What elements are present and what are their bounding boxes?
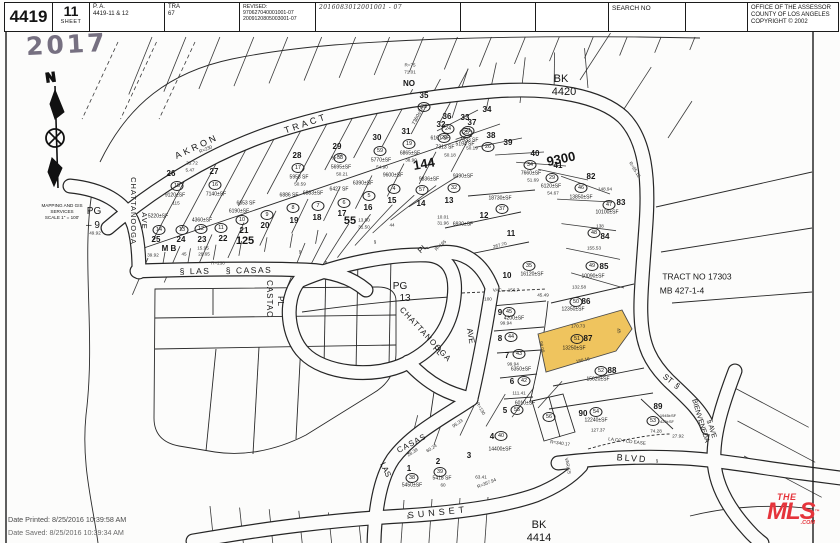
tra-cell: TRA 67 bbox=[165, 3, 240, 31]
date-saved: Date Saved: 8/25/2016 10:39:34 AM bbox=[8, 528, 124, 537]
assessor-office-cell: OFFICE OF THE ASSESSOR COUNTY OF LOS ANG… bbox=[748, 3, 838, 31]
search-no-cell: SEARCH NO bbox=[609, 3, 686, 31]
sheet-number: 11 bbox=[56, 4, 86, 19]
mls-logo-mls: MLS™ bbox=[767, 502, 817, 522]
map-canvas: N AKRONTRACT§ LAS § CASASCASTACPLCHATTAN… bbox=[0, 0, 840, 543]
year-stamp: 2017 bbox=[25, 28, 108, 61]
pa-label: P. A. bbox=[93, 4, 161, 11]
empty-cell bbox=[686, 3, 748, 31]
date-printed: Date Printed: 8/25/2016 10:39:58 AM bbox=[8, 515, 126, 524]
map-book-number: 4419 bbox=[5, 3, 53, 31]
tra-label: TRA bbox=[168, 4, 236, 11]
revised-entry-2: 2009120805003001-07 bbox=[243, 16, 312, 22]
trademark-symbol: ™ bbox=[815, 509, 819, 515]
svg-text:N: N bbox=[44, 70, 57, 86]
sheet-label: SHEET bbox=[56, 19, 86, 25]
office-line-2: COUNTY OF LOS ANGELES bbox=[751, 12, 835, 19]
sheet-number-cell: 11 SHEET bbox=[53, 3, 90, 31]
mls-logo[interactable]: THE MLS™ .COM bbox=[765, 492, 817, 540]
revision-handwritten-cell: 2016083012001001 - 07 bbox=[316, 3, 461, 31]
office-line-1: OFFICE OF THE ASSESSOR bbox=[751, 5, 835, 12]
pa-value: 4419-11 & 12 bbox=[93, 11, 161, 18]
pa-cell: P. A. 4419-11 & 12 bbox=[90, 3, 165, 31]
assessor-map-sheet: 4419 11 SHEET P. A. 4419-11 & 12 TRA 67 … bbox=[0, 0, 840, 543]
parcel-linework: N bbox=[0, 0, 840, 543]
map-header: 4419 11 SHEET P. A. 4419-11 & 12 TRA 67 … bbox=[4, 2, 839, 32]
tra-value: 67 bbox=[168, 11, 236, 18]
empty-cell bbox=[461, 3, 536, 31]
handwritten-revision-number: 2016083012001001 - 07 bbox=[319, 4, 402, 11]
north-arrow-icon: N bbox=[44, 70, 64, 188]
empty-cell bbox=[536, 3, 609, 31]
gis-scale-note: MAPPING AND GIS SERVICES SCALE 1" = 100' bbox=[14, 203, 110, 221]
highlighted-parcel bbox=[538, 310, 632, 372]
revised-cell: REVISED: 970627040001001-07 200912080500… bbox=[240, 3, 316, 31]
office-line-3: COPYRIGHT © 2002 bbox=[751, 19, 835, 26]
